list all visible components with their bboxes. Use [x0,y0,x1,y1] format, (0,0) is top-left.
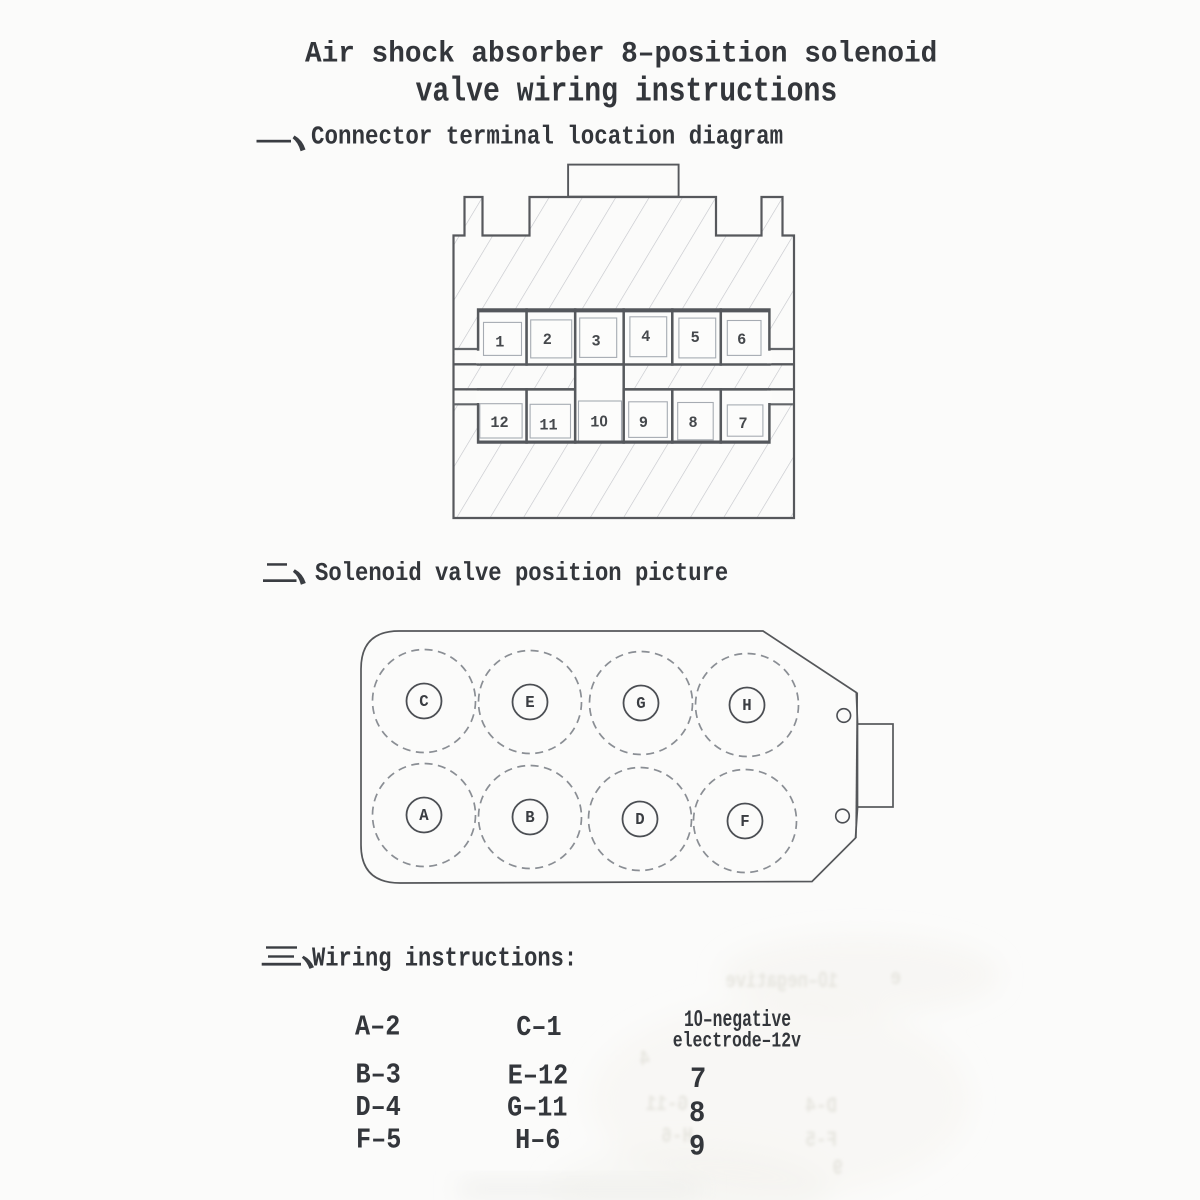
svg-text:G-11: G-11 [646,1091,688,1116]
svg-text:H: H [742,697,751,715]
svg-text:F-5: F-5 [805,1127,837,1152]
svg-text:1: 1 [495,333,504,351]
svg-text:H–6: H–6 [515,1125,560,1158]
svg-text:F: F [740,813,749,831]
svg-text:B: B [525,809,535,827]
svg-text:Connector terminal location di: Connector terminal location diagram [311,123,783,152]
svg-text:e: e [890,965,901,990]
svg-text:7: 7 [690,1062,706,1096]
svg-text:A: A [419,807,429,825]
svg-text:4: 4 [641,328,650,346]
svg-text:C: C [419,693,429,711]
svg-text:Solenoid valve position pictur: Solenoid valve position picture [315,560,728,589]
svg-text:F–5: F–5 [356,1124,401,1157]
svg-text:electrode–12v: electrode–12v [673,1029,802,1054]
svg-text:10: 10 [590,413,608,431]
svg-text:Wiring instructions:: Wiring instructions: [312,945,577,974]
svg-text:9: 9 [832,1155,843,1180]
svg-text:D-4: D-4 [805,1093,837,1118]
svg-text:4: 4 [639,1046,650,1071]
svg-text:12: 12 [490,414,508,432]
svg-text:9: 9 [639,414,648,432]
svg-text:9: 9 [689,1130,705,1164]
svg-text:8: 8 [688,414,697,432]
svg-text:B–3: B–3 [356,1059,401,1092]
svg-text:6: 6 [737,330,746,348]
svg-text:10–negative: 10–negative [726,968,838,994]
svg-text:G: G [636,695,645,713]
svg-text:D–4: D–4 [356,1092,401,1125]
svg-text:G–11: G–11 [507,1092,567,1125]
svg-text:7: 7 [738,415,747,433]
svg-text:8: 8 [689,1096,705,1130]
svg-text:11: 11 [539,416,557,434]
svg-text:3: 3 [591,332,600,350]
svg-text:C–1: C–1 [516,1012,561,1045]
svg-text:E–12: E–12 [508,1060,568,1093]
svg-text:E: E [525,694,534,712]
svg-text:5: 5 [691,329,700,347]
svg-text:A–2: A–2 [355,1011,400,1044]
svg-text:Air shock absorber 8–position: Air shock absorber 8–position solenoid [305,37,937,71]
svg-text:D: D [635,811,645,829]
svg-text:2: 2 [543,330,552,348]
svg-text:valve wiring instructions: valve wiring instructions [416,73,838,111]
